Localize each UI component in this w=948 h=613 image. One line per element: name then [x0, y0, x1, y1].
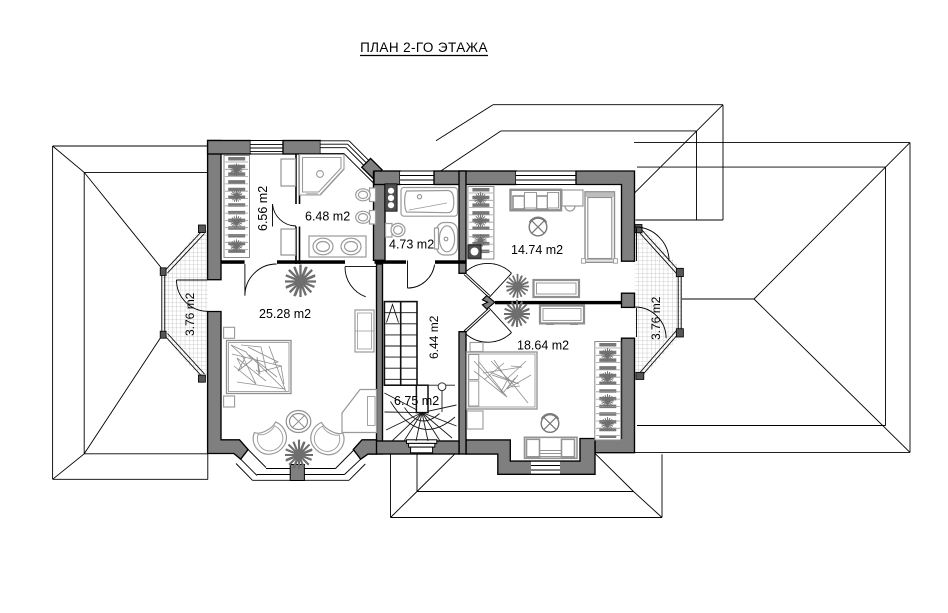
svg-text:6.75 m2: 6.75 m2	[394, 394, 439, 408]
svg-text:3.76 m2: 3.76 m2	[183, 292, 197, 336]
svg-text:ПЛАН 2-ГО ЭТАЖА: ПЛАН 2-ГО ЭТАЖА	[360, 40, 488, 55]
svg-text:6.48 m2: 6.48 m2	[305, 210, 350, 224]
svg-text:4.73 m2: 4.73 m2	[389, 238, 434, 252]
svg-text:14.74 m2: 14.74 m2	[511, 243, 563, 257]
svg-text:25.28 m2: 25.28 m2	[259, 307, 311, 321]
svg-text:6.44 m2: 6.44 m2	[427, 315, 441, 359]
svg-text:3.76 m2: 3.76 m2	[649, 296, 663, 340]
svg-text:18.64 m2: 18.64 m2	[517, 339, 569, 353]
svg-text:6.56 m2: 6.56 m2	[256, 186, 270, 231]
